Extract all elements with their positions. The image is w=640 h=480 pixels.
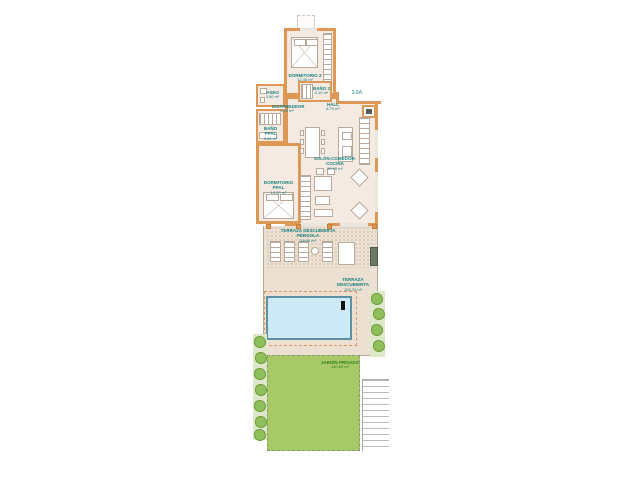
window (300, 28, 317, 31)
chair (321, 148, 325, 154)
chair (321, 130, 325, 136)
room-area: 103.20 m² (332, 288, 374, 293)
sun-lounger (322, 241, 333, 262)
bush-plant (371, 324, 383, 336)
room-label: TERRAZA DESCUBIERTA PÉRGOLA 19.90 m² (280, 228, 336, 244)
pillow (306, 39, 318, 46)
bush-plant (255, 352, 267, 364)
room-area: 3.05 m² (272, 109, 302, 114)
sofa-cushions (314, 176, 332, 191)
barbecue (370, 247, 378, 266)
room-area: 3.50 m² (262, 95, 283, 100)
outdoor-dining-set (338, 242, 355, 265)
room-area: 8.70 m² (318, 107, 348, 112)
sink (342, 132, 352, 140)
sun-lounger (284, 241, 295, 262)
dining-table (305, 127, 320, 158)
pool-shower (341, 301, 345, 310)
stairs (362, 379, 389, 451)
round-table (311, 247, 319, 255)
shower (259, 113, 281, 125)
room-area: 4.10 m² (313, 91, 330, 96)
floor-plan: DORMITORIO 2 12.45 m² 3.0A HALL 8.70 m² … (0, 0, 640, 480)
sun-lounger (270, 241, 281, 262)
room-area: 12.45 m² (287, 78, 323, 83)
unit-code-label: 3.0A (346, 90, 368, 96)
room-area: 14.20 m² (259, 191, 298, 196)
bush-plant (254, 429, 266, 441)
window (375, 130, 378, 158)
bush-plant (255, 416, 267, 428)
room-label: TERRAZA DESCUBIERTA 103.20 m² (332, 277, 374, 293)
room-label: SALÓN-COMEDOR-COCINA 30.95 m² (306, 156, 364, 172)
room-label: BAÑO 2 4.10 m² (313, 86, 330, 96)
bush-plant (254, 336, 266, 348)
room-area: 5.84 m² (258, 137, 283, 142)
sofa (300, 175, 311, 220)
chair (321, 139, 325, 145)
sun-lounger (298, 241, 309, 262)
tv-bench (314, 209, 333, 217)
window (375, 172, 378, 212)
pergola-post (266, 224, 271, 229)
room-label: JARDÍN PRIVADO 140.60 m² (320, 360, 360, 370)
room-label: DORMITORIO PPAL 14.20 m² (259, 180, 298, 196)
bush-plant (371, 293, 383, 305)
coffee-table (315, 196, 330, 205)
chair (300, 130, 304, 136)
bush-plant (254, 368, 266, 380)
chair (300, 148, 304, 154)
pool (266, 296, 352, 340)
room-label: DISTRIBUIDOR 3.05 m² (272, 104, 302, 114)
room-label: BAÑO PPAL 5.84 m² (258, 126, 283, 142)
pergola-post (372, 224, 377, 229)
shower (301, 84, 313, 99)
bush-plant (255, 384, 267, 396)
room-area: 30.95 m² (306, 167, 364, 172)
window (300, 223, 328, 226)
bush-plant (254, 400, 266, 412)
chair (300, 139, 304, 145)
room-area: 140.60 m² (320, 365, 360, 370)
room-label: ASEO 3.50 m² (262, 90, 283, 100)
pillow (294, 39, 306, 46)
bush-plant (373, 308, 385, 320)
bush-plant (373, 340, 385, 352)
bed (291, 37, 318, 68)
room-area: 19.90 m² (280, 239, 336, 244)
appliance-dark-panel (366, 109, 372, 114)
bed (263, 192, 294, 219)
window (340, 223, 368, 226)
room-dormitorio-ppal: DORMITORIO PPAL 14.20 m² (256, 143, 301, 224)
room-label: HALL 8.70 m² (318, 102, 348, 112)
room-label: DORMITORIO 2 12.45 m² (287, 73, 323, 83)
room-bano-2: BAÑO 2 4.10 m² (298, 81, 332, 102)
